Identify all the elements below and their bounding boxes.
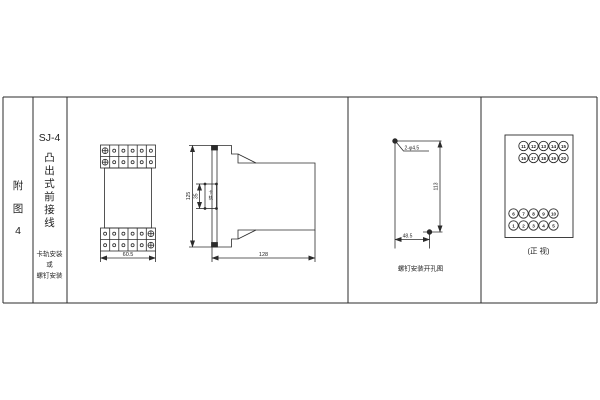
- terminal-layout-panel: 11 12 13 14 15 16 17 18 19 20 6 7 8 9 10…: [505, 135, 573, 256]
- terminal-number: 20: [561, 156, 567, 161]
- terminal-number: 4: [542, 223, 545, 228]
- terminal-number: 2: [522, 223, 525, 228]
- screw-head-icon: [148, 242, 154, 248]
- mount-note-line-2: 或: [46, 260, 53, 269]
- drawing-canvas: 附 图 4 SJ-4 凸 出 式 前 接 线 卡轨安装 或 螺钉安装: [0, 0, 600, 400]
- mount-note-line-1: 卡轨安装: [37, 249, 64, 258]
- figure-label-char-2: 图: [13, 203, 24, 215]
- side-view-profile: [212, 146, 316, 248]
- front-view-width-dimension: 60.5: [101, 251, 156, 262]
- side-rail-dim-label: 35: [194, 193, 200, 199]
- model-label: SJ-4: [39, 132, 61, 144]
- type-char-3: 式: [44, 177, 55, 190]
- type-char-4: 前: [44, 190, 55, 203]
- type-char-1: 凸: [44, 152, 55, 164]
- holes-callout: 2-φ4.5: [397, 143, 430, 152]
- terminal-number: 15: [561, 144, 567, 149]
- side-view-rail-dimension: 35: [194, 184, 205, 209]
- terminal-number: 5: [552, 223, 555, 228]
- holes-label: 2-φ4.5: [405, 146, 420, 152]
- mount-note-line-3: 螺钉安装: [37, 271, 64, 280]
- side-view: 125 35 卡 轨: [186, 146, 315, 263]
- terminal-number: 6: [512, 211, 515, 216]
- terminal-number: 1: [512, 223, 515, 228]
- front-view-top-terminal-block: [101, 145, 156, 168]
- front-view-body: [105, 168, 152, 228]
- horizontal-dim-label: 48.5: [403, 234, 413, 240]
- vertical-dim-label: 113: [434, 182, 440, 190]
- type-char-2: 出: [44, 164, 55, 177]
- drawing-frame: [3, 97, 597, 303]
- terminal-bottom-group: 6 7 8 9 10 1 2 3 4 5: [509, 209, 558, 230]
- technical-drawing-sheet: 附 图 4 SJ-4 凸 出 式 前 接 线 卡轨安装 或 螺钉安装: [0, 0, 600, 400]
- screw-head-icon: [102, 159, 108, 165]
- terminal-number: 18: [541, 156, 547, 161]
- terminal-number: 19: [551, 156, 557, 161]
- terminal-number: 3: [532, 223, 535, 228]
- screw-head-icon: [148, 231, 154, 237]
- terminal-top-group: 11 12 13 14 15 16 17 18 19 20: [519, 141, 568, 162]
- type-char-6: 线: [44, 216, 55, 229]
- front-view: 60.5: [101, 145, 156, 262]
- terminal-number: 8: [532, 211, 535, 216]
- front-view-bottom-terminal-block: [101, 228, 156, 251]
- terminal-number: 7: [522, 211, 525, 216]
- side-view-depth-dimension: 128: [212, 230, 315, 262]
- terminal-number: 12: [531, 144, 537, 149]
- title-column: SJ-4 凸 出 式 前 接 线 卡轨安装 或 螺钉安装: [37, 132, 64, 280]
- mounting-hole-diagram: 2-φ4.5 113 48.5 螺钉安装开孔图: [393, 139, 444, 273]
- vertical-dimension: 113: [434, 141, 441, 232]
- side-height-dim-label: 125: [186, 192, 192, 201]
- terminal-number: 13: [541, 144, 547, 149]
- screw-head-icon: [102, 148, 108, 154]
- terminal-number: 17: [531, 156, 537, 161]
- front-width-dim-label: 60.5: [123, 252, 134, 258]
- terminal-number: 14: [551, 144, 557, 149]
- terminal-number: 11: [521, 144, 526, 149]
- figure-label-char-3: 4: [15, 225, 21, 237]
- horizontal-dimension: 48.5: [395, 234, 430, 240]
- figure-number-column: 附 图 4: [13, 179, 24, 237]
- rail-label-char-2: 轨: [209, 195, 214, 202]
- type-char-5: 接: [44, 203, 55, 216]
- terminal-number: 9: [542, 211, 545, 216]
- terminal-layout-caption: (正 视): [527, 246, 550, 256]
- mounting-diagram-caption: 螺钉安装开孔图: [398, 264, 444, 273]
- din-rail-clip: 卡 轨: [204, 183, 218, 210]
- terminal-number: 16: [521, 156, 527, 161]
- side-depth-dim-label: 128: [259, 252, 268, 258]
- terminal-number: 10: [551, 211, 557, 216]
- figure-label-char-1: 附: [13, 179, 24, 192]
